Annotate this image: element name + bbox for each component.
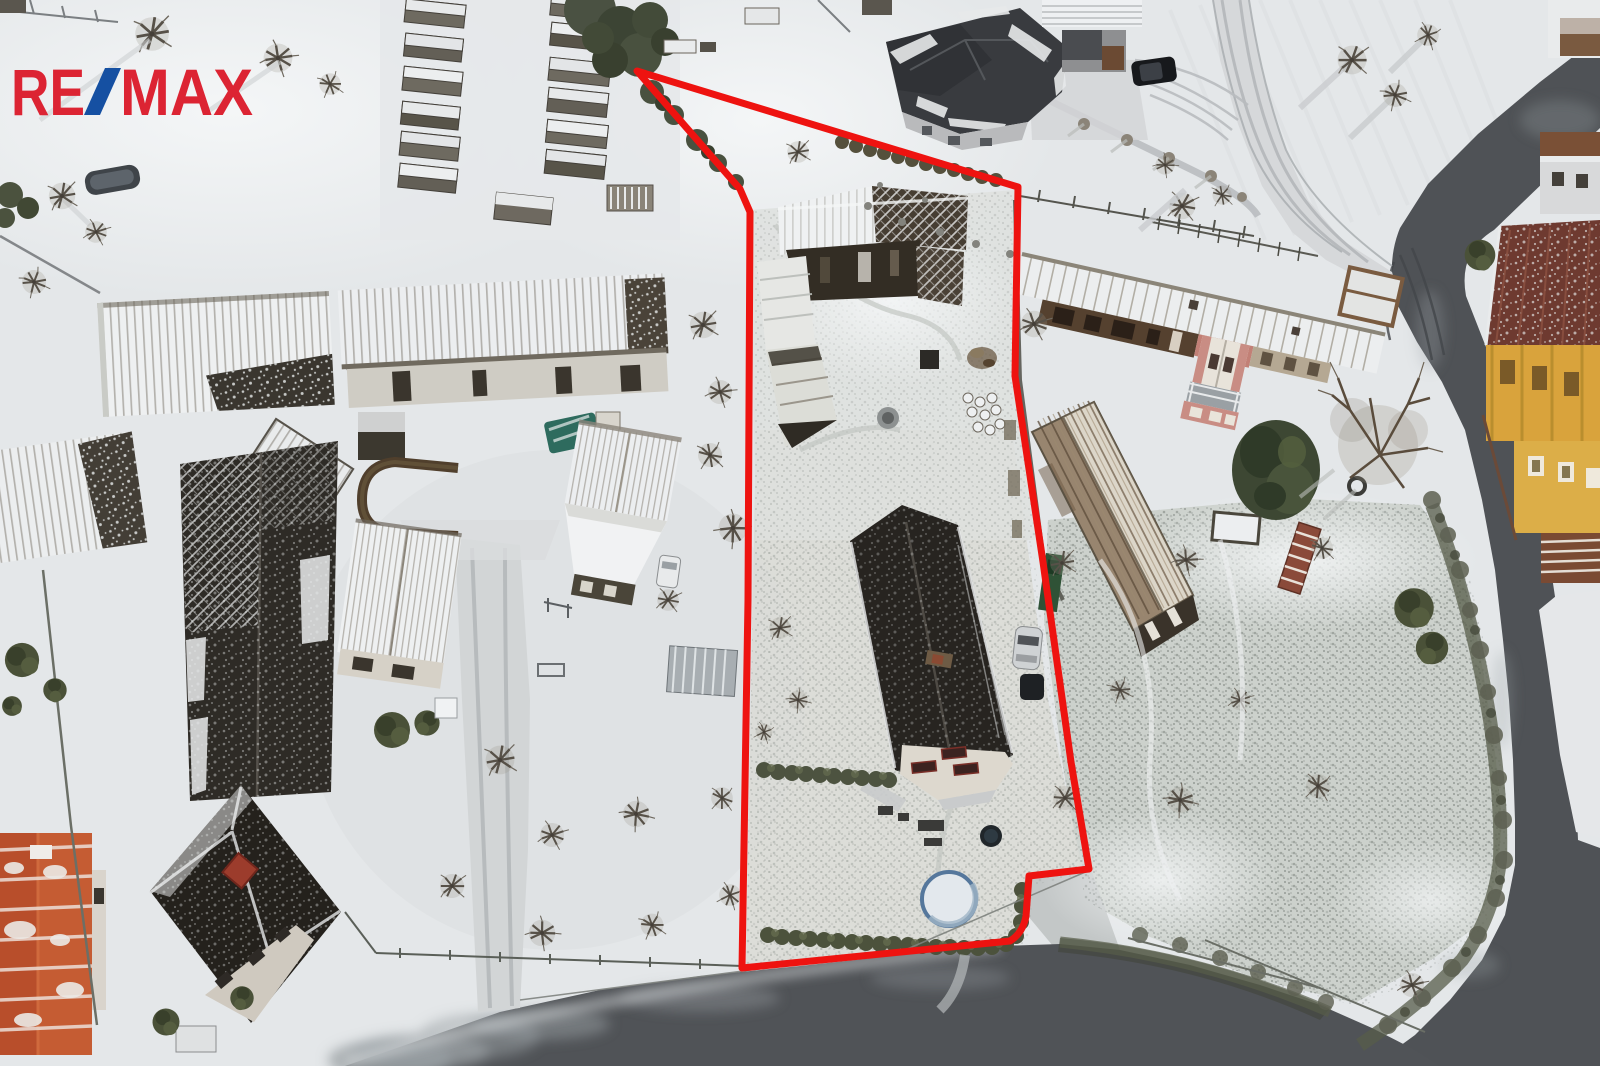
svg-text:RE: RE <box>11 55 85 129</box>
svg-text:MAX: MAX <box>120 55 253 129</box>
